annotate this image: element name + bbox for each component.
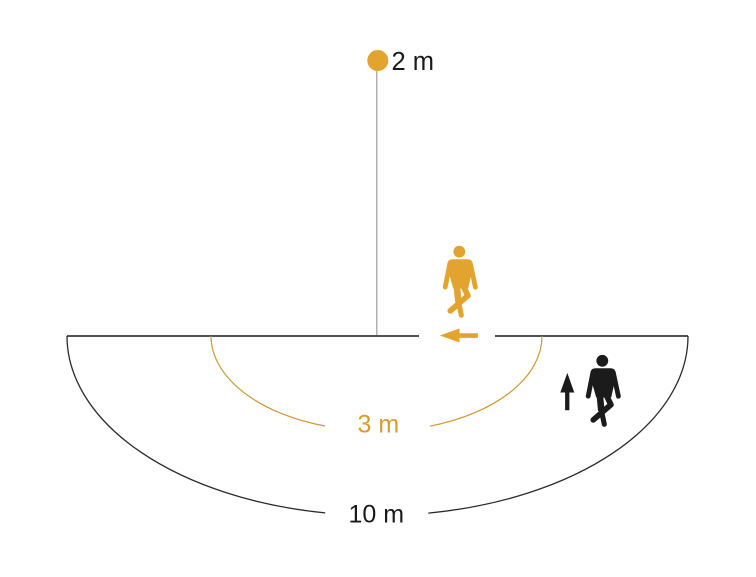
svg-text:3 m: 3 m [358, 411, 400, 439]
svg-text:10 m: 10 m [349, 501, 405, 529]
svg-text:2 m: 2 m [392, 48, 435, 76]
